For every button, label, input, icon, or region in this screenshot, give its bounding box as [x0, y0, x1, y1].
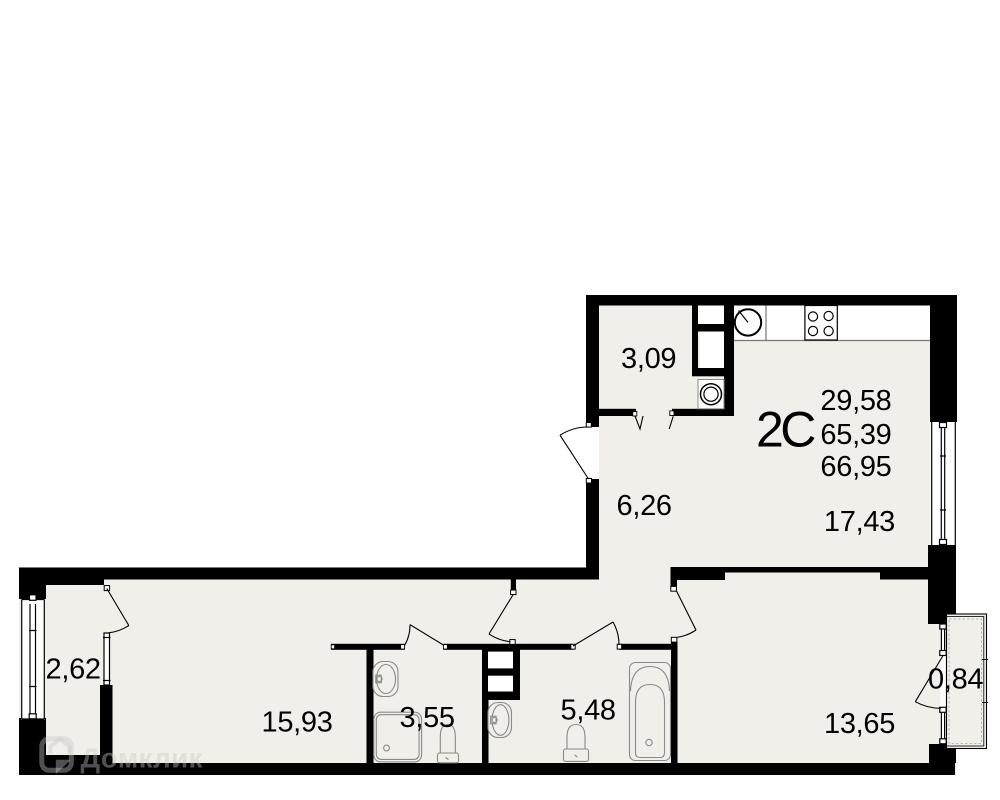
svg-text:13,65: 13,65 [824, 708, 895, 740]
svg-text:0,84: 0,84 [928, 664, 983, 696]
svg-text:2,62: 2,62 [46, 654, 101, 686]
svg-text:65,39: 65,39 [820, 419, 891, 451]
svg-text:3,09: 3,09 [621, 343, 676, 375]
svg-text:17,43: 17,43 [824, 506, 895, 538]
svg-text:Домклик: Домклик [81, 743, 203, 774]
svg-text:3,55: 3,55 [400, 702, 455, 734]
svg-text:6,26: 6,26 [617, 490, 672, 522]
svg-text:66,95: 66,95 [820, 451, 891, 483]
svg-text:15,93: 15,93 [262, 707, 333, 739]
svg-text:5,48: 5,48 [561, 695, 616, 727]
svg-text:29,58: 29,58 [820, 385, 891, 417]
svg-text:2С: 2С [756, 402, 815, 458]
